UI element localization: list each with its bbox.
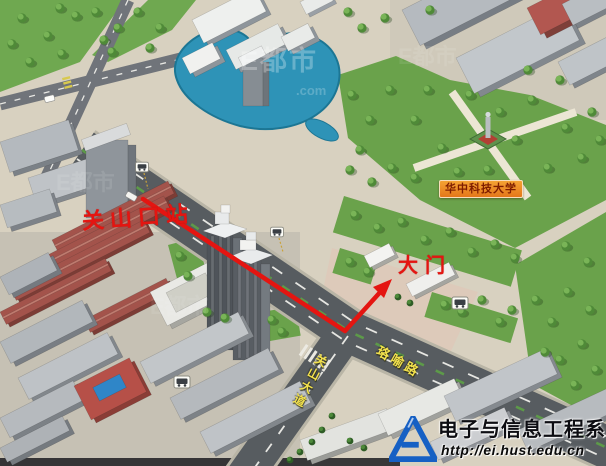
campus-map-viewport[interactable]: 关山口站 大门 华中科技大学 珞喻路 关山大道 E都市 .com E都市 E都市… [0,0,606,466]
university-label: 华中科技大学 [439,180,523,198]
gate-label: 大门 [398,255,452,275]
